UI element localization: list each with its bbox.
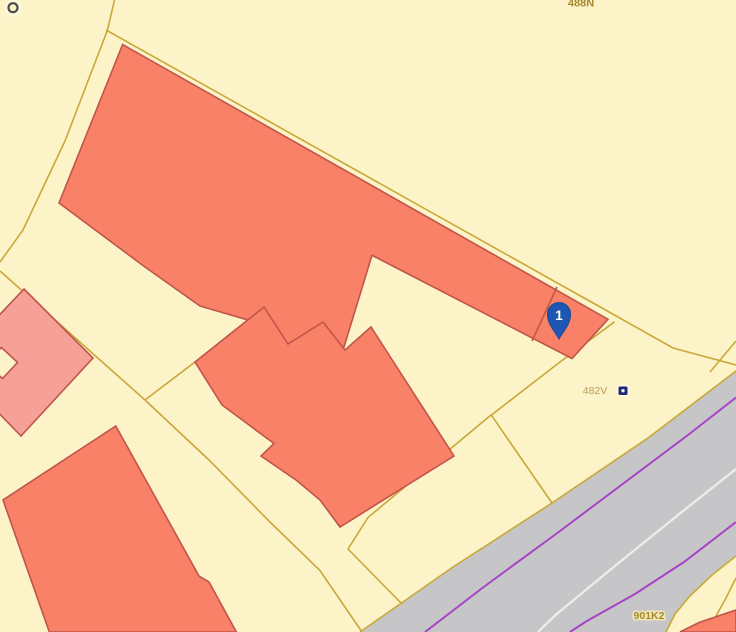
- svg-text:488N: 488N: [568, 0, 594, 10]
- svg-text:1: 1: [555, 308, 563, 323]
- svg-text:482V: 482V: [583, 385, 608, 397]
- svg-text:901K2: 901K2: [634, 610, 665, 622]
